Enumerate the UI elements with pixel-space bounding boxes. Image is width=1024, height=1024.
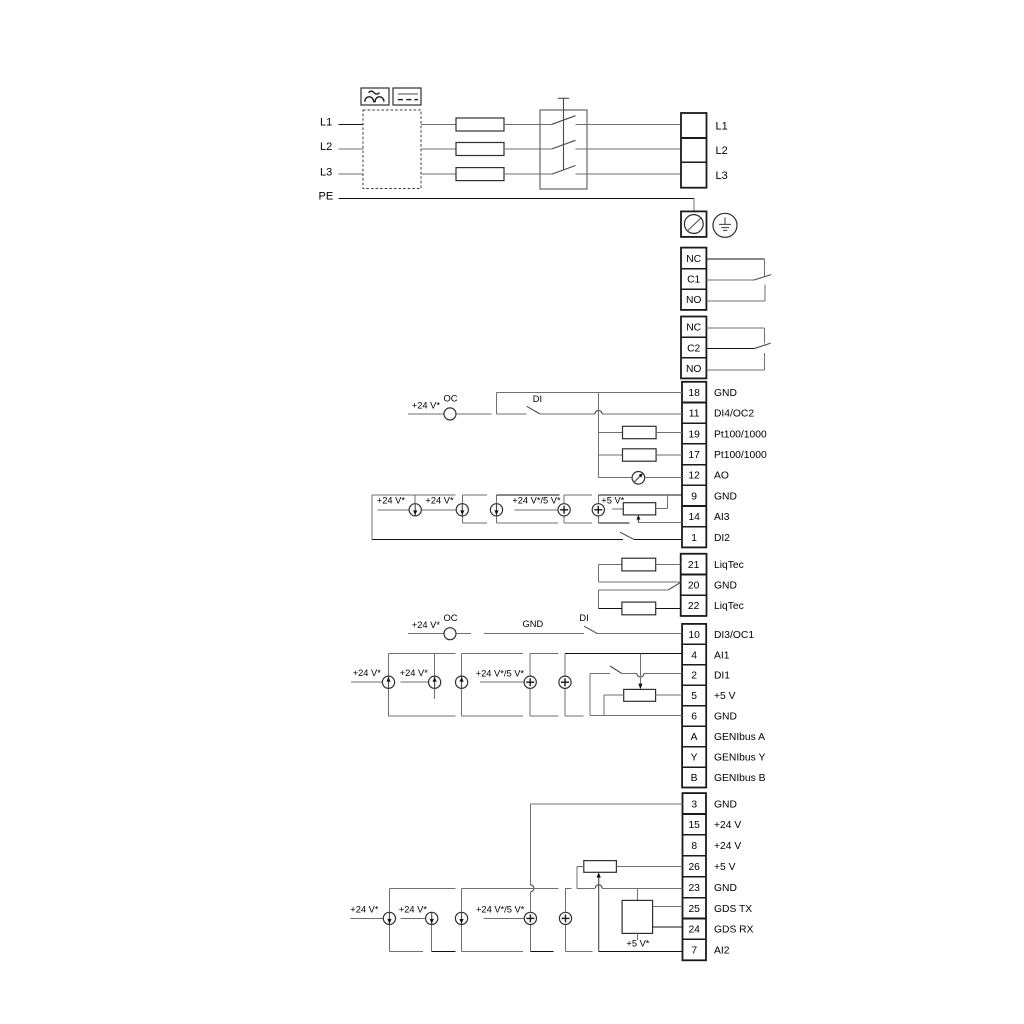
- svg-text:L1: L1: [320, 117, 332, 129]
- svg-text:GND: GND: [714, 883, 737, 894]
- svg-text:3: 3: [691, 799, 697, 810]
- svg-text:+24 V: +24 V: [714, 841, 741, 852]
- svg-text:L2: L2: [320, 141, 332, 153]
- svg-text:C2: C2: [687, 343, 700, 354]
- svg-text:GND: GND: [714, 799, 737, 810]
- svg-text:21: 21: [688, 560, 700, 571]
- svg-text:+5 V: +5 V: [714, 862, 736, 873]
- svg-text:NO: NO: [686, 364, 701, 375]
- svg-text:25: 25: [688, 904, 700, 915]
- svg-text:LiqTec: LiqTec: [714, 601, 744, 612]
- svg-text:L3: L3: [320, 166, 332, 178]
- svg-text:14: 14: [688, 512, 700, 523]
- svg-text:+24 V*: +24 V*: [353, 668, 382, 678]
- svg-text:26: 26: [688, 862, 700, 873]
- svg-text:OC: OC: [444, 613, 458, 623]
- svg-text:+5 V: +5 V: [714, 691, 736, 702]
- svg-text:DI2: DI2: [714, 533, 730, 544]
- svg-text:8: 8: [691, 841, 697, 852]
- svg-text:GND: GND: [714, 712, 737, 723]
- svg-text:DI4/OC2: DI4/OC2: [714, 409, 754, 420]
- svg-text:23: 23: [688, 883, 700, 894]
- svg-text:NC: NC: [686, 323, 701, 334]
- svg-text:GND: GND: [714, 580, 737, 591]
- svg-text:22: 22: [688, 601, 700, 612]
- svg-text:A: A: [691, 732, 698, 743]
- svg-text:15: 15: [688, 820, 700, 831]
- svg-text:+24 V*: +24 V*: [412, 400, 441, 410]
- svg-text:DI: DI: [579, 613, 588, 623]
- svg-text:24: 24: [688, 925, 700, 936]
- svg-text:+24 V*: +24 V*: [400, 668, 429, 678]
- svg-text:L3: L3: [716, 170, 728, 182]
- svg-text:11: 11: [689, 409, 700, 420]
- svg-text:+24 V*/5 V*: +24 V*/5 V*: [476, 668, 525, 678]
- svg-text:+24 V*: +24 V*: [425, 496, 454, 506]
- svg-text:+24 V*: +24 V*: [350, 904, 379, 914]
- svg-text:DI3/OC1: DI3/OC1: [714, 630, 754, 641]
- svg-text:DI1: DI1: [714, 671, 730, 682]
- svg-text:LiqTec: LiqTec: [714, 560, 744, 571]
- svg-text:6: 6: [691, 712, 697, 723]
- svg-text:+24 V*/5 V*: +24 V*/5 V*: [512, 496, 561, 506]
- svg-text:Pt100/1000: Pt100/1000: [714, 429, 767, 440]
- svg-text:GENIbus B: GENIbus B: [714, 773, 766, 784]
- svg-text:C1: C1: [687, 275, 700, 286]
- svg-text:+24 V*/5 V*: +24 V*/5 V*: [476, 904, 525, 914]
- svg-text:20: 20: [688, 580, 700, 591]
- svg-text:AI2: AI2: [714, 946, 730, 957]
- svg-text:Pt100/1000: Pt100/1000: [714, 450, 767, 461]
- svg-text:DI: DI: [533, 394, 542, 404]
- svg-text:PE: PE: [319, 191, 334, 203]
- svg-text:1: 1: [691, 533, 697, 544]
- svg-text:5: 5: [691, 691, 697, 702]
- svg-text:OC: OC: [444, 394, 458, 404]
- svg-text:+5 V*: +5 V*: [626, 938, 649, 948]
- svg-text:9: 9: [691, 491, 697, 502]
- svg-text:Y: Y: [691, 753, 698, 764]
- svg-text:GND: GND: [714, 388, 737, 399]
- svg-text:GDS RX: GDS RX: [714, 925, 754, 936]
- svg-text:+24 V: +24 V: [714, 820, 741, 831]
- svg-text:4: 4: [691, 650, 697, 661]
- svg-text:GDS TX: GDS TX: [714, 904, 752, 915]
- svg-text:10: 10: [688, 630, 700, 641]
- svg-text:2: 2: [691, 671, 697, 682]
- svg-text:7: 7: [691, 946, 697, 957]
- svg-text:NO: NO: [686, 295, 701, 306]
- svg-text:+24 V*: +24 V*: [412, 620, 441, 630]
- svg-text:L1: L1: [716, 121, 728, 133]
- svg-text:17: 17: [688, 450, 700, 461]
- svg-text:12: 12: [688, 471, 700, 482]
- svg-text:+5 V*: +5 V*: [601, 495, 624, 505]
- svg-text:AO: AO: [714, 471, 729, 482]
- svg-text:AI1: AI1: [714, 650, 730, 661]
- svg-text:GENIbus Y: GENIbus Y: [714, 753, 765, 764]
- svg-text:B: B: [691, 773, 698, 784]
- svg-text:L2: L2: [716, 145, 728, 157]
- svg-text:GND: GND: [714, 491, 737, 502]
- svg-text:19: 19: [688, 429, 700, 440]
- svg-text:NC: NC: [686, 254, 701, 265]
- svg-text:+24 V*: +24 V*: [399, 904, 428, 914]
- svg-text:AI3: AI3: [714, 512, 730, 523]
- svg-text:GND: GND: [523, 619, 544, 629]
- svg-text:18: 18: [688, 388, 700, 399]
- svg-text:+24 V*: +24 V*: [377, 496, 406, 506]
- svg-text:GENIbus A: GENIbus A: [714, 732, 765, 743]
